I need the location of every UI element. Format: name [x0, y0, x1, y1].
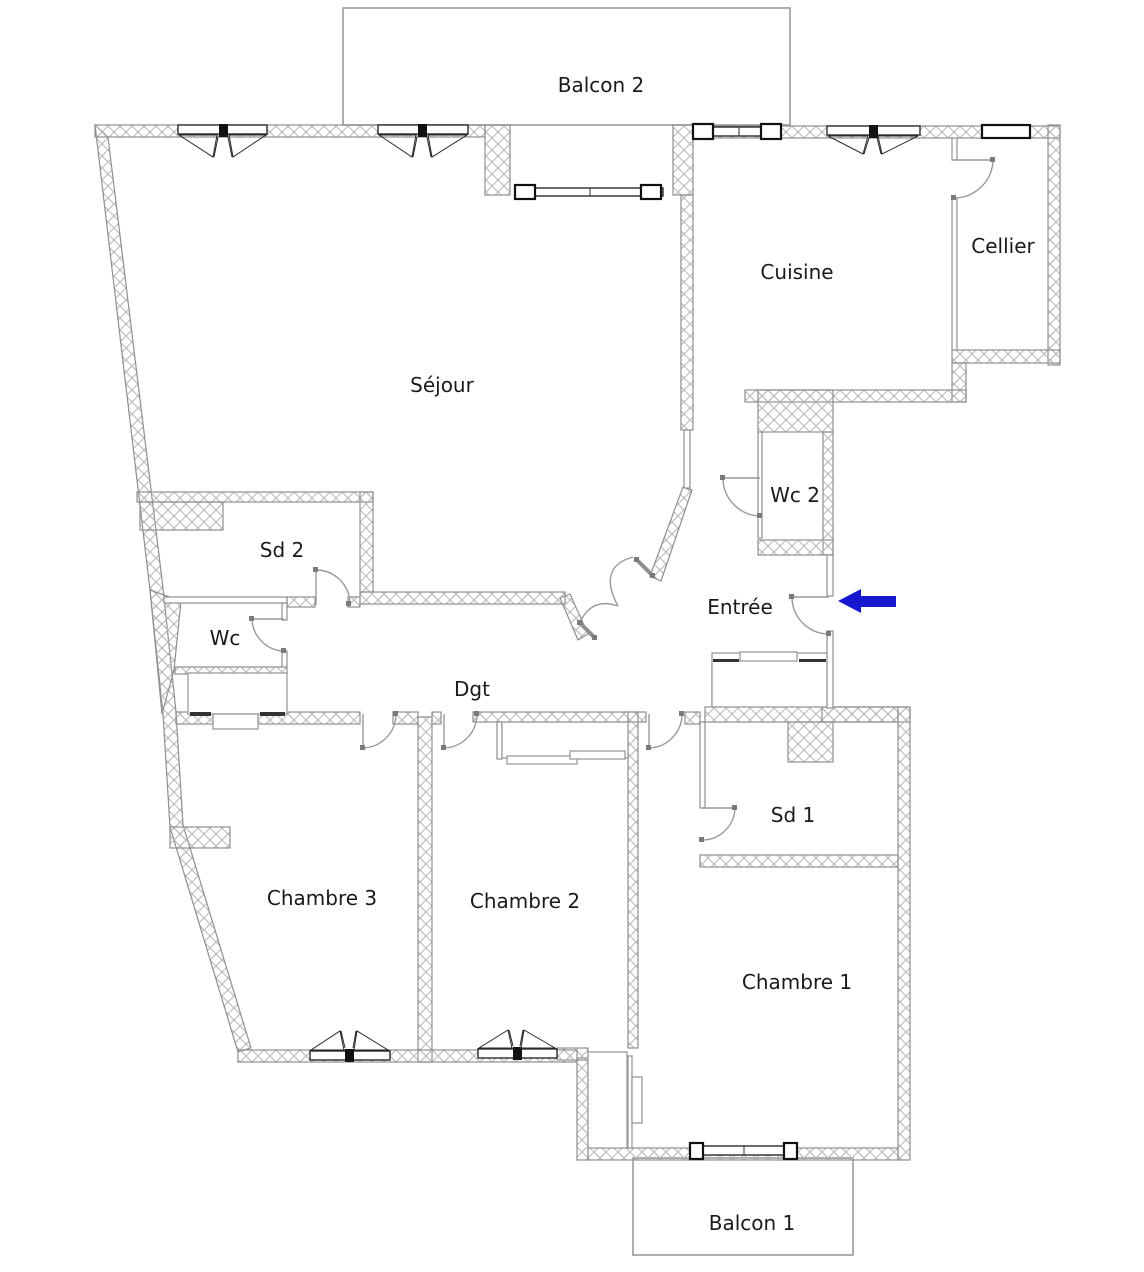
sd2-door	[313, 567, 351, 606]
wall-entrance-below-door	[827, 631, 833, 708]
sejour-bay-window	[515, 185, 663, 199]
chambre2-closet	[502, 722, 628, 764]
room-label-sd2: Sd 2	[260, 538, 304, 562]
room-label-sd1: Sd 1	[771, 803, 815, 827]
room-label-cuisine: Cuisine	[760, 260, 833, 284]
balcony-1-outline	[633, 1158, 853, 1255]
wall-wc-right-upper	[282, 603, 287, 620]
wall-sd1-duct-block	[788, 722, 833, 762]
chambre1-door	[646, 711, 684, 750]
room-label-balcon2: Balcon 2	[558, 73, 645, 97]
wall-wc2-bottom	[758, 540, 833, 555]
wall-entrance-above-door	[827, 555, 833, 596]
sejour-double-door	[577, 557, 655, 640]
room-label-chambre3: Chambre 3	[267, 886, 377, 910]
wall-sd2-block	[140, 502, 223, 530]
wall-sd2-right	[360, 492, 373, 592]
wall-corridor-south-3	[432, 712, 441, 724]
wc2-door	[720, 475, 762, 518]
wall-bay-left	[485, 125, 510, 195]
wall-left-widening	[150, 590, 181, 714]
wall-wc-right-lower	[282, 651, 287, 667]
wall-closet2-left	[497, 722, 502, 759]
chambre3-window	[310, 1031, 390, 1062]
wall-right-upper	[1048, 125, 1060, 365]
wall-wc2-left	[758, 432, 762, 538]
wall-bay-right	[673, 125, 693, 195]
wall-corridor-south-5	[685, 712, 700, 724]
room-label-chambre1: Chambre 1	[742, 970, 852, 994]
wall-funnel-jamb-lower	[560, 594, 588, 640]
room-label-chambre2: Chambre 2	[470, 889, 580, 913]
wall-corridor-north	[360, 592, 565, 604]
wall-sd1-left	[700, 722, 705, 808]
chambre1-nook-closet	[588, 1052, 642, 1148]
room-label-dgt: Dgt	[454, 677, 490, 701]
entrance-door	[789, 594, 831, 636]
room-label-cellier: Cellier	[971, 234, 1035, 258]
sd1-door	[699, 805, 737, 842]
wall-sd2-top	[137, 492, 373, 502]
room-label-entree: Entrée	[707, 595, 773, 619]
wall-entrance-east	[822, 707, 910, 722]
room-label-wc2: Wc 2	[770, 483, 820, 507]
cellier-door	[951, 157, 995, 200]
entrance-arrow-icon	[838, 589, 896, 613]
wall-cellier-bottom	[952, 350, 1060, 363]
room-label-sejour: Séjour	[410, 373, 474, 397]
wc-door	[249, 616, 286, 653]
sejour-casement-window-2	[378, 124, 468, 157]
cuisine-casement-window	[827, 125, 920, 154]
wall-funnel-jamb-upper	[650, 487, 692, 581]
wall-corridor-south-4	[473, 712, 646, 722]
wall-wc2-block	[758, 390, 833, 432]
floor-plan: Balcon 2 Cuisine Cellier Séjour Wc 2 Ent…	[0, 0, 1144, 1272]
entrance-arrow	[838, 589, 896, 613]
room-label-balcon1: Balcon 1	[709, 1211, 796, 1235]
wall-sd1-bottom	[700, 855, 898, 867]
wall-sd2-bottom	[164, 597, 287, 603]
wall-left-outer	[95, 125, 251, 1052]
entree-closet	[712, 652, 827, 707]
wall-sejour-stub	[684, 430, 690, 488]
wall-ch3-ch2-divider	[418, 717, 432, 1062]
wall-sd2-door-left	[287, 597, 315, 607]
wall-cellier-west-upper	[952, 138, 957, 160]
wall-nook-left	[577, 1058, 588, 1160]
wall-left-block	[170, 827, 230, 848]
wall-right-lower	[898, 707, 910, 1160]
balcony-2-outline	[343, 8, 790, 125]
room-label-wc: Wc	[210, 626, 241, 650]
sejour-casement-window-1	[178, 124, 267, 157]
chambre2-window	[478, 1030, 557, 1060]
wall-wc2-right	[823, 432, 833, 555]
wall-sejour-cuisine	[681, 195, 693, 430]
cellier-window	[982, 125, 1030, 138]
wall-cellier-west-lower	[952, 198, 957, 350]
chambre3-door	[360, 711, 398, 750]
wall-ch2-ch1-divider	[628, 712, 638, 1048]
